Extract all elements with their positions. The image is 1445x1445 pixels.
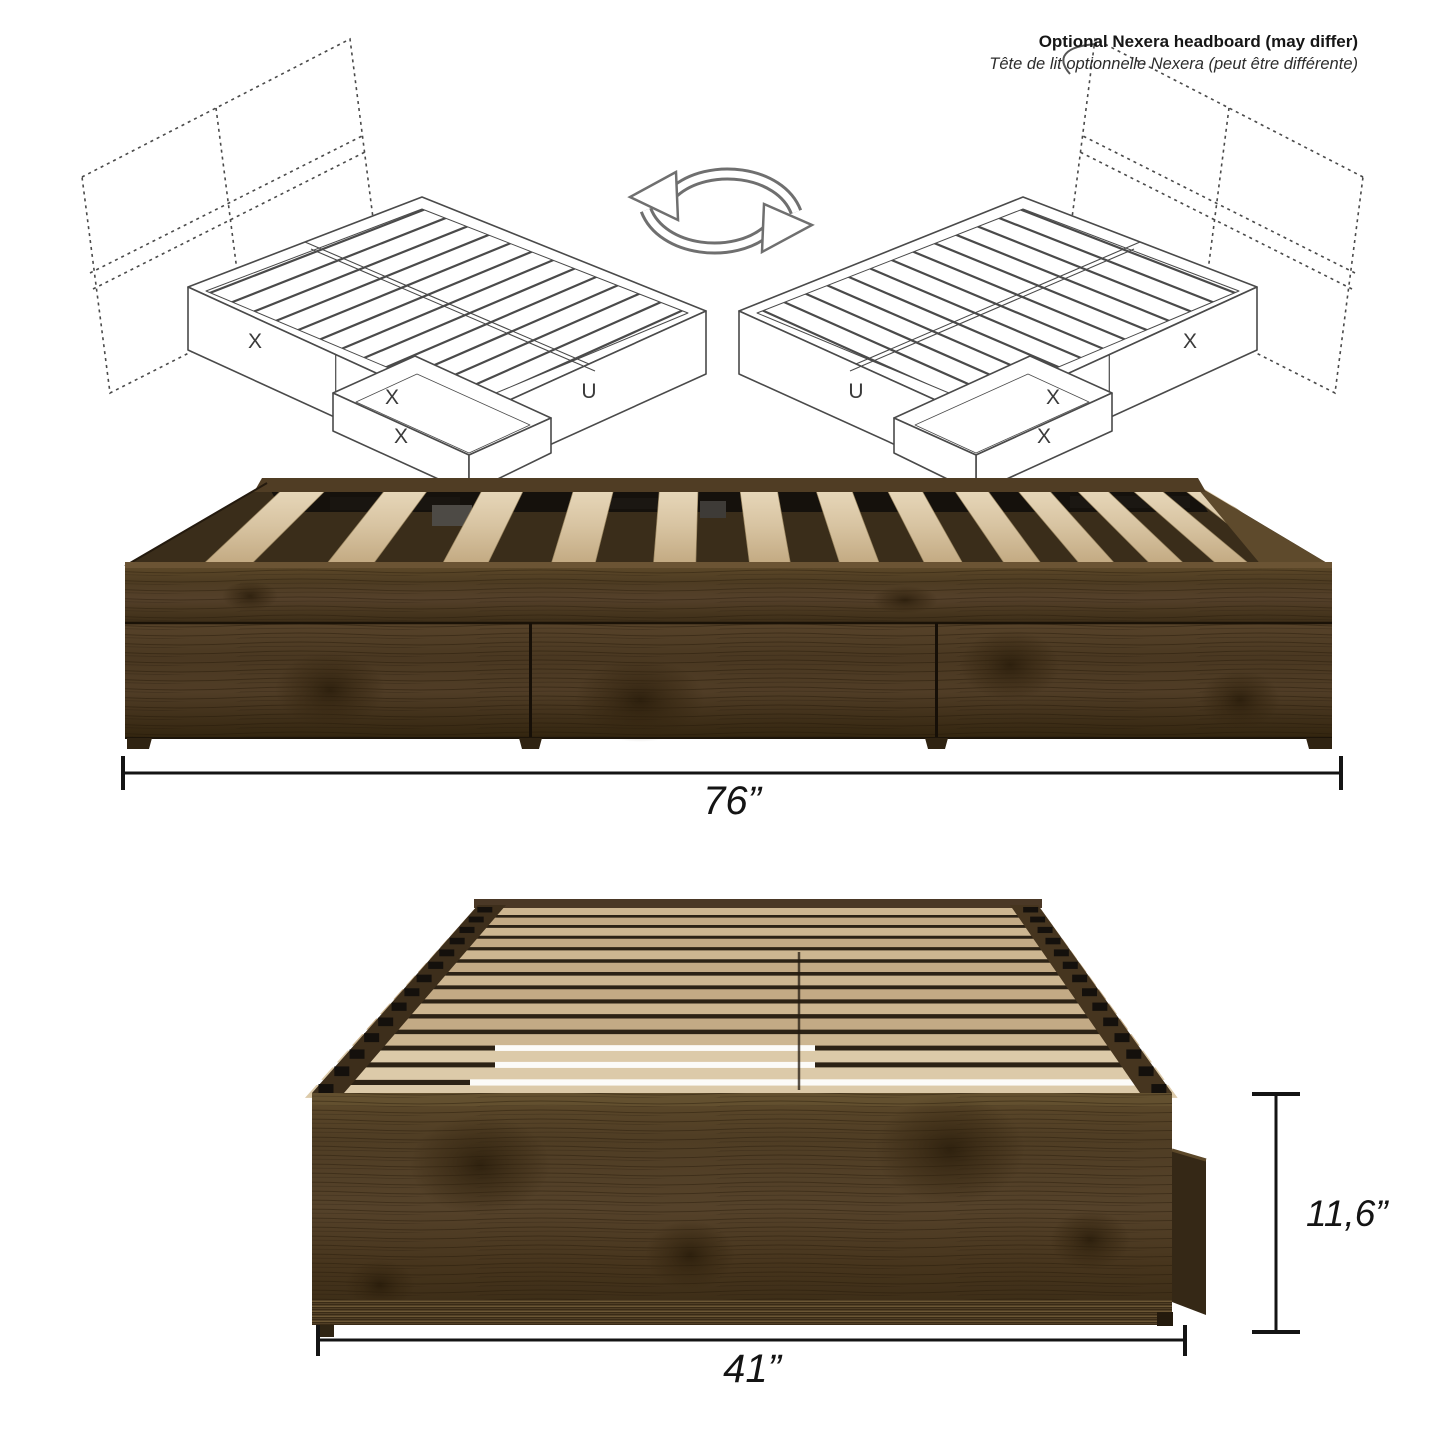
slat — [406, 976, 1096, 986]
slat-gap-highlight — [495, 1062, 815, 1068]
headboard-note-en: Optional Nexera headboard (may differ) — [1039, 32, 1358, 51]
slat-bracket — [1072, 975, 1087, 983]
slat-bracket — [364, 1033, 379, 1042]
slat-bracket — [469, 917, 484, 923]
slat — [460, 918, 1053, 925]
slat-gap-highlight — [495, 1045, 815, 1051]
slat-bracket — [404, 988, 419, 996]
width-dimension-label: 41” — [723, 1347, 782, 1391]
front-view-render — [305, 899, 1206, 1337]
side-drawer-edge — [1172, 1150, 1206, 1315]
reversible-configuration-diagram: X X X U X X X U Optional Nexera headboar… — [82, 32, 1363, 493]
bed-product-diagram: X X X U X X X U Optional Nexera headboar… — [0, 0, 1445, 1445]
slat — [380, 1004, 1117, 1015]
left-drawer-label-1: X — [248, 330, 262, 353]
slat-bracket — [350, 1049, 365, 1058]
headboard-note-fr: Tête de lit optionnelle Nexera (peut êtr… — [989, 55, 1358, 73]
slat-bracket — [1045, 938, 1060, 945]
slat-bracket — [392, 1003, 407, 1011]
slat-bracket — [1151, 1084, 1166, 1094]
slat-bracket — [459, 927, 474, 933]
height-dimension-label: 11,6” — [1306, 1193, 1389, 1234]
slat-bracket — [439, 949, 454, 956]
slat-gap-highlight — [470, 1079, 1160, 1085]
slat-bracket — [1126, 1049, 1141, 1058]
drawer-divider — [529, 623, 532, 738]
slat-bracket — [1054, 949, 1069, 956]
swap-arrows-icon — [630, 172, 812, 252]
slat-bracket — [1092, 1003, 1107, 1011]
left-open-drawer-label: X — [394, 425, 408, 448]
slat-bracket — [1103, 1018, 1118, 1027]
right-open-side-label: U — [848, 380, 863, 403]
slat — [418, 963, 1087, 972]
right-drawer-label-1: X — [1183, 330, 1197, 353]
slat — [352, 1034, 1140, 1046]
right-open-drawer-label: X — [1037, 425, 1051, 448]
slat — [393, 989, 1106, 999]
slat — [429, 950, 1077, 959]
slat-bracket — [1115, 1033, 1130, 1042]
slat-bracket — [1082, 988, 1097, 996]
slat-bracket — [450, 938, 465, 945]
slat-bracket — [477, 907, 492, 912]
right-drawer-label-2: X — [1046, 386, 1060, 409]
diagram-svg: X X X U X X X U Optional Nexera headboar… — [0, 0, 1445, 1445]
slat — [450, 928, 1060, 936]
left-open-side-label: U — [581, 380, 596, 403]
left-drawer-label-2: X — [385, 386, 399, 409]
slat-bracket — [378, 1018, 393, 1027]
length-dimension-label: 76” — [703, 779, 762, 823]
length-dimension: 76” — [123, 756, 1341, 823]
slat — [440, 939, 1068, 947]
headboard-annotation: Optional Nexera headboard (may differ) T… — [989, 32, 1358, 74]
width-dimension: 41” — [318, 1325, 1185, 1391]
slat-bracket — [1038, 927, 1053, 933]
slat-bracket — [428, 962, 443, 969]
slat — [366, 1019, 1128, 1030]
slat — [469, 908, 1045, 915]
side-view-render — [125, 478, 1332, 749]
slat — [321, 1067, 1164, 1079]
height-dimension: 11,6” — [1252, 1093, 1389, 1333]
slat-bracket — [318, 1084, 333, 1094]
slat-bracket — [1023, 907, 1038, 912]
slat-bracket — [1063, 962, 1078, 969]
slat-bracket — [417, 975, 432, 983]
slat — [337, 1050, 1152, 1062]
drawer-divider — [935, 623, 938, 738]
slat-bracket — [1139, 1066, 1154, 1076]
slat-bracket — [334, 1066, 349, 1076]
slat — [653, 485, 698, 565]
slat-bracket — [1030, 917, 1045, 923]
